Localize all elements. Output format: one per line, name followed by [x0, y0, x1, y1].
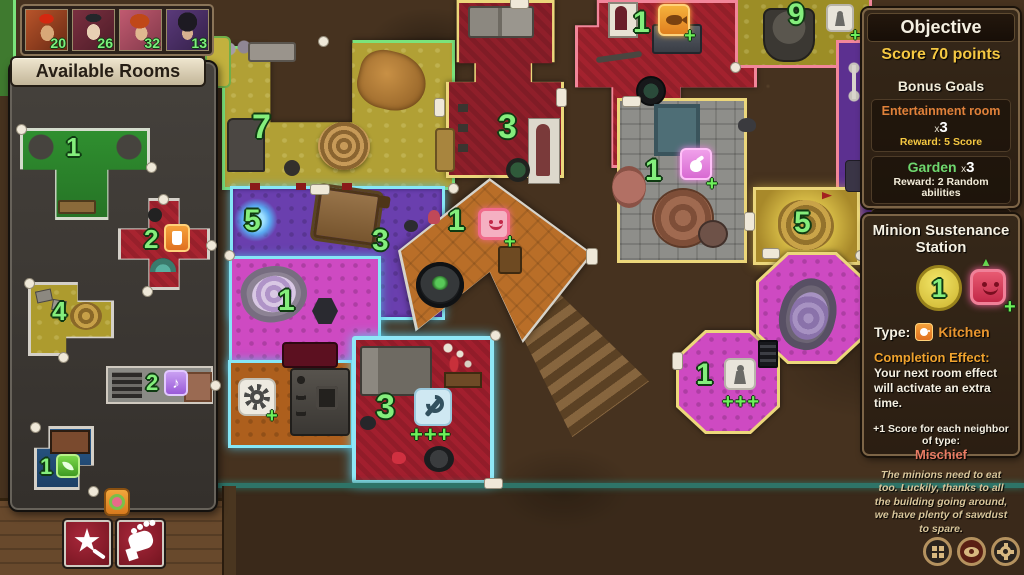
shelf — [444, 372, 482, 388]
goal-reward: Reward: 5 Score — [874, 137, 1008, 149]
type-label: Type: — [874, 324, 910, 340]
objective-title: Objective — [900, 17, 981, 37]
player-score: 13 — [191, 36, 207, 50]
effect-label: Completion Effect: — [874, 350, 1008, 365]
door — [510, 0, 529, 9]
plus-mark: + — [850, 26, 861, 44]
wall-pip — [224, 250, 235, 261]
eye-icon — [964, 547, 979, 557]
visibility-button[interactable] — [957, 537, 986, 566]
room-count: 3 — [498, 110, 517, 144]
music-note-icon: ♪ — [164, 370, 188, 396]
door — [672, 352, 683, 370]
plus-mark: + — [706, 174, 718, 194]
card-count: 1 — [66, 134, 80, 160]
game-screen: 7 3 1 + 9 + 1 + — [0, 0, 1024, 575]
flavor-text: The minions need to eat too. Luckily, th… — [873, 469, 1009, 537]
wall-pip — [210, 380, 221, 391]
objective-header: Objective — [867, 13, 1015, 42]
wall-pip — [730, 62, 741, 73]
neighbor-label: +1 Score for each neighbor of type: — [870, 423, 1012, 447]
station-count-circle: 1 — [916, 265, 962, 311]
person-icon — [724, 358, 756, 390]
wall-pip — [448, 183, 459, 194]
available-rooms-title: Available Rooms — [36, 61, 180, 82]
door — [586, 248, 598, 265]
wall-pip — [490, 330, 501, 341]
gold-coil — [70, 302, 102, 330]
portrait-player-3[interactable]: 32 — [119, 9, 162, 51]
goal-mult-n: 3 — [939, 119, 947, 136]
plus-marks: +++ — [410, 424, 452, 446]
room-count: 1 — [448, 206, 465, 236]
room-count: 9 — [788, 0, 805, 30]
coffin — [282, 342, 338, 368]
chair-small — [377, 195, 391, 209]
room-count: 7 — [252, 110, 271, 144]
smiley-tile-icon[interactable] — [104, 488, 130, 516]
barbell — [845, 62, 863, 102]
wall-frame — [250, 183, 260, 190]
station-panel: Minion Sustenance Station 1 ▲ + Type: Ki… — [862, 214, 1020, 456]
door — [556, 88, 567, 107]
wood-pillar — [222, 486, 236, 575]
player-portraits: 20 26 32 13 — [20, 4, 214, 56]
wall-frame — [296, 183, 306, 190]
door — [310, 184, 330, 195]
door — [434, 98, 445, 117]
rug-small — [184, 372, 212, 402]
objective-panel: Objective Score 70 points Bonus Goals En… — [862, 8, 1020, 208]
rooms-view-button[interactable] — [923, 537, 952, 566]
room-count: 5 — [794, 208, 811, 238]
rope-coil — [318, 122, 370, 170]
juice-icon — [164, 224, 190, 252]
goal-name: Entertainment room — [882, 104, 1001, 118]
cauldron-glow — [432, 276, 448, 290]
bench — [58, 200, 96, 214]
station-count: 1 — [932, 275, 946, 301]
door — [762, 248, 780, 259]
bomb-fuse — [92, 548, 106, 559]
type-value: Kitchen — [938, 324, 989, 340]
card-count: 2 — [144, 226, 158, 252]
leaf-icon — [56, 454, 80, 478]
wall-pip — [30, 422, 41, 433]
goal-reward: Reward: 2 Random abilities — [874, 177, 1008, 200]
player-score: 20 — [50, 36, 66, 50]
card-count: 2 — [146, 372, 158, 394]
room-count: 5 — [244, 206, 261, 236]
bonus-goal-garden[interactable]: Garden x3 Reward: 2 Random abilities — [871, 156, 1011, 204]
wall-pip — [142, 286, 153, 297]
wall-pip — [24, 278, 35, 289]
card-count: 4 — [52, 298, 66, 324]
dark-pot — [424, 446, 454, 472]
attack-ability-button[interactable] — [117, 520, 164, 567]
wall-pip — [146, 162, 157, 173]
stove-door — [316, 386, 338, 410]
portrait-player-1[interactable]: 20 — [25, 9, 68, 51]
room-count: 3 — [372, 226, 389, 256]
available-rooms-header: Available Rooms — [10, 56, 206, 87]
pot — [284, 160, 300, 176]
goal-name: Garden — [908, 159, 957, 175]
main-goal: Score 70 points — [864, 46, 1018, 64]
kitchen-type-icon — [915, 323, 933, 341]
grate — [758, 340, 778, 368]
basket — [435, 128, 455, 172]
crates — [468, 6, 534, 38]
portrait-player-2[interactable]: 26 — [72, 9, 115, 51]
station-title: Minion Sustenance Station — [872, 222, 1010, 257]
plus-mark: + — [684, 26, 696, 46]
bug — [404, 220, 418, 232]
tv-screen — [50, 430, 90, 454]
wall-weapons — [458, 92, 468, 152]
rose-rug — [612, 166, 646, 208]
spider — [360, 416, 376, 430]
room-count: 1 — [696, 360, 713, 390]
red-bottle — [428, 210, 440, 224]
minion-icon — [970, 269, 1006, 305]
picture-figure — [615, 6, 627, 30]
settings-gear-icon — [998, 544, 1013, 559]
dark-pot — [148, 208, 162, 222]
green-pot — [506, 158, 530, 182]
door — [622, 96, 641, 107]
room-count: 1 — [633, 8, 650, 38]
triangle-up-icon: ▲ — [980, 255, 992, 269]
sabotage-ability-button[interactable] — [64, 520, 111, 567]
plus-marks: +++ — [722, 392, 760, 412]
room-count: 1 — [645, 156, 662, 186]
dark-pot — [698, 220, 728, 248]
grid-view-icon — [932, 546, 944, 558]
mannequin-figure — [536, 124, 550, 176]
goal-mult-n: 3 — [966, 159, 974, 176]
bench — [248, 42, 296, 62]
plus-mark: + — [504, 232, 516, 252]
door — [744, 212, 755, 231]
room-mischief[interactable] — [398, 178, 593, 343]
rat — [738, 118, 756, 132]
plus-mark: + — [266, 406, 278, 426]
grid-mat — [112, 372, 142, 398]
wall-pip — [16, 124, 27, 135]
skeleton — [440, 340, 476, 374]
stove-knobs — [296, 374, 306, 424]
effect-text: Your next room effect will activate an e… — [874, 366, 1008, 411]
bonus-goal-entertainment[interactable]: Entertainment room x3 Reward: 5 Score — [871, 99, 1011, 152]
wall-pip — [88, 486, 99, 497]
card-count: 1 — [40, 456, 52, 478]
wall-pip — [206, 240, 217, 251]
red-splat — [392, 452, 406, 464]
neighbor-value: Mischief — [864, 447, 1018, 462]
settings-button[interactable] — [991, 537, 1020, 566]
plus-mark: + — [1004, 297, 1016, 317]
wall-frame — [342, 183, 352, 190]
wall-pip — [158, 194, 169, 205]
player-score: 32 — [144, 36, 160, 50]
wrench-icon — [414, 388, 452, 426]
wall-pip — [58, 352, 69, 363]
room-count: 1 — [278, 286, 295, 316]
wall-pip — [318, 36, 329, 47]
player-score: 26 — [97, 36, 113, 50]
portrait-player-4[interactable]: 13 — [166, 9, 209, 51]
room-count: 3 — [376, 390, 395, 424]
door — [484, 478, 503, 489]
bonus-goals-title: Bonus Goals — [864, 78, 1018, 94]
